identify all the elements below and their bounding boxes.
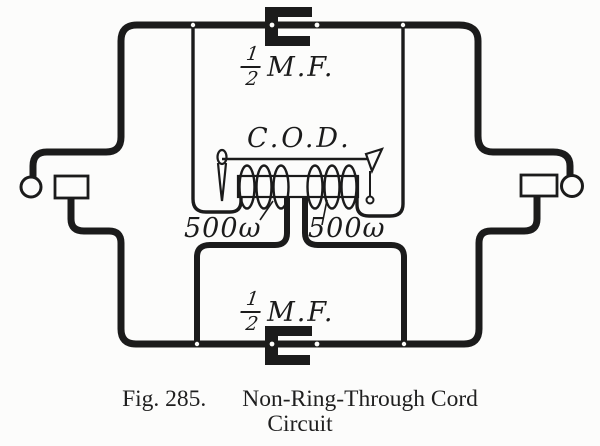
figure-number: Fig. 285. [122,386,206,412]
coil-label: C.O.D. [247,125,352,152]
fraction-half: 1 2 [242,45,262,89]
junction-dot [315,23,320,28]
coil-left-lead-wire [193,27,241,212]
winding-left-label: 500ω [184,215,262,242]
figure-caption-line1: Fig. 285.Non-Ring-Through Cord [0,388,600,412]
drop-needle-icon [218,150,227,201]
fraction-half: 1 2 [242,290,262,334]
junction-dot [195,342,199,346]
left-plug [21,176,88,198]
figure-title: Non-Ring-Through Cord [242,386,478,412]
fraction-denominator: 2 [245,313,260,334]
right-plug-tip-icon [562,176,583,197]
capacitor-bottom-label: 1 2 M.F. [242,290,334,334]
fraction-numerator: 1 [240,45,263,68]
right-plug [521,175,583,197]
junction-dot [270,23,275,28]
junction-dot [401,23,405,27]
left-plug-body-icon [55,176,88,198]
junction-dot [402,342,406,346]
junction-dot [315,342,320,347]
left-plug-tip-icon [21,177,41,197]
junction-dot [191,23,195,27]
winding-right-label: 500ω [308,215,386,242]
figure-caption-line2: Circuit [0,413,600,437]
coil-right-lead-wire [357,27,403,216]
right-plug-body-icon [521,175,557,196]
capacitor-unit: M.F. [267,299,334,326]
pointer-line-left [260,201,273,220]
capacitor-unit: M.F. [267,54,334,81]
capacitor-top-label: 1 2 M.F. [242,45,334,89]
drop-flag-icon [366,149,382,204]
junction-dot [270,342,275,347]
fraction-denominator: 2 [245,68,260,89]
figure-page: C.O.D. 1 2 M.F. 500ω 500ω 1 2 M.F. Fig. … [0,0,600,446]
fraction-numerator: 1 [240,290,263,313]
